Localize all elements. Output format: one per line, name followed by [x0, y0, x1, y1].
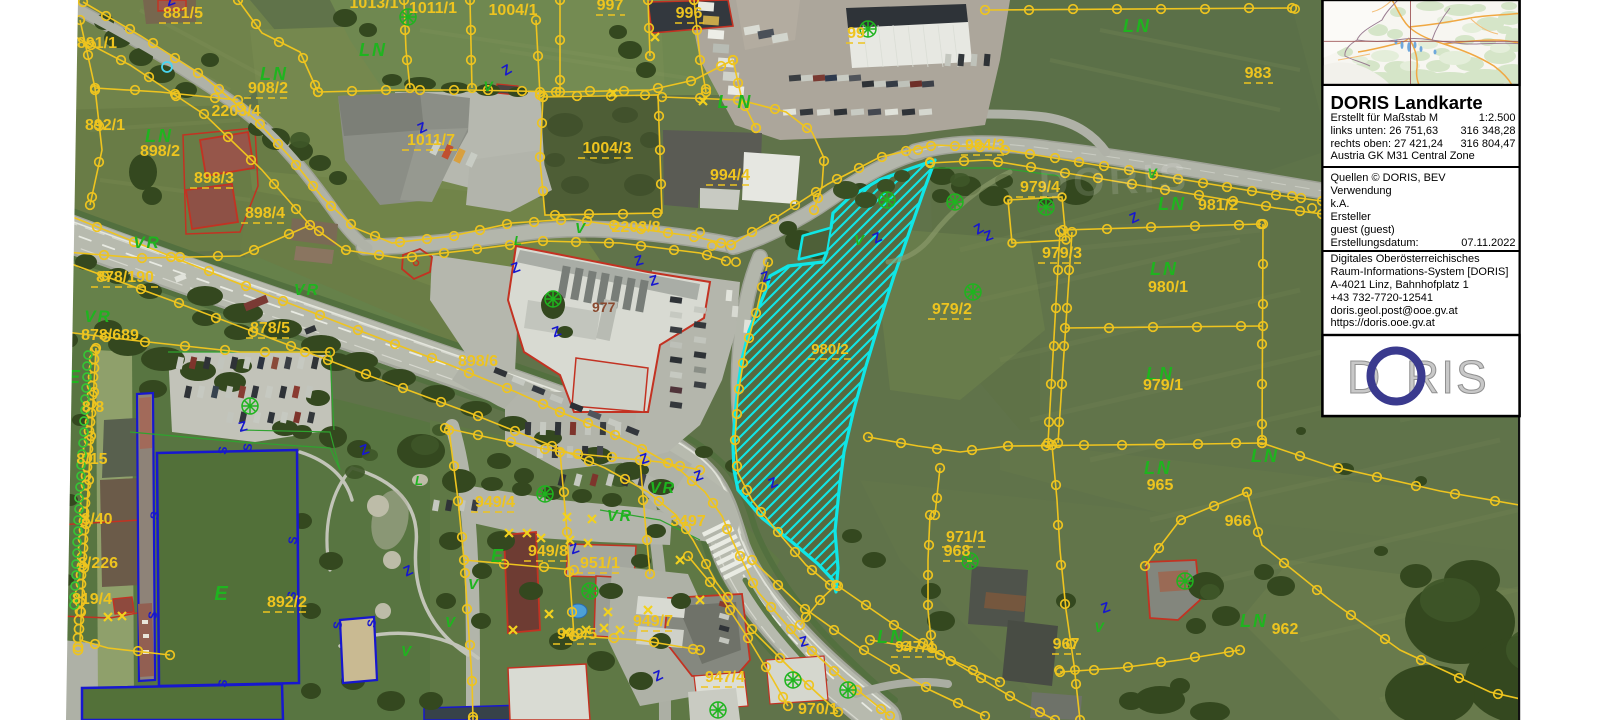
svg-text:Digitales Oberösterreichisches: Digitales Oberösterreichisches [1331, 253, 1481, 265]
svg-text:898/6: 898/6 [458, 353, 498, 370]
svg-text:962: 962 [1272, 621, 1299, 638]
svg-text:878/689: 878/689 [81, 327, 139, 344]
svg-text:947/4: 947/4 [705, 669, 745, 686]
svg-text:1013/1: 1013/1 [350, 0, 399, 12]
svg-text:V: V [575, 220, 587, 237]
svg-text:1:2.500: 1:2.500 [1479, 112, 1516, 124]
svg-text:k.A.: k.A. [1331, 198, 1350, 210]
svg-text:V: V [1094, 619, 1105, 635]
svg-text:Ersteller: Ersteller [1331, 211, 1372, 223]
svg-text:DORIS Landkarte: DORIS Landkarte [1331, 92, 1483, 113]
svg-text:1011/7: 1011/7 [407, 132, 455, 149]
svg-text:+43 732-7720-12541: +43 732-7720-12541 [1331, 292, 1433, 304]
svg-text:967: 967 [1053, 636, 1080, 653]
svg-text:V: V [401, 643, 413, 660]
svg-text:99: 99 [847, 25, 865, 42]
svg-text:966: 966 [1225, 513, 1252, 530]
svg-text:965: 965 [1147, 477, 1174, 494]
svg-text:Quellen © DORIS, BEV: Quellen © DORIS, BEV [1331, 172, 1447, 184]
svg-text:V: V [468, 576, 480, 593]
svg-text:LN: LN [359, 40, 387, 60]
svg-text:316 348,28: 316 348,28 [1460, 125, 1515, 137]
svg-text:951/1: 951/1 [580, 555, 620, 572]
svg-text:LN: LN [1150, 259, 1178, 279]
svg-text:1011/1: 1011/1 [409, 0, 457, 17]
svg-text:Erstellungsdatum:: Erstellungsdatum: [1331, 237, 1419, 249]
svg-text:881/5: 881/5 [163, 5, 203, 22]
svg-text:819/4: 819/4 [72, 591, 112, 608]
svg-text:949/5: 949/5 [557, 626, 597, 643]
svg-text:LN: LN [1251, 446, 1279, 466]
svg-text:878/5: 878/5 [250, 320, 290, 337]
svg-text:Erstellt für Maßstab M: Erstellt für Maßstab M [1331, 112, 1439, 124]
svg-text:947/4: 947/4 [895, 639, 935, 656]
svg-text:892/1: 892/1 [85, 117, 125, 134]
svg-text:996: 996 [676, 5, 703, 22]
svg-text:LN: LN [1240, 611, 1268, 631]
svg-text:908/2: 908/2 [248, 80, 288, 97]
svg-text:980/2: 980/2 [811, 341, 849, 358]
svg-text:949/8: 949/8 [528, 543, 568, 560]
svg-text:Verwendung: Verwendung [1331, 185, 1392, 197]
svg-text:949/4: 949/4 [475, 494, 515, 511]
svg-text:8/8: 8/8 [82, 399, 104, 416]
svg-text:949/7: 949/7 [633, 613, 673, 630]
svg-text:2203/4: 2203/4 [212, 103, 261, 120]
svg-text:891/1: 891/1 [77, 35, 117, 52]
svg-text:VR: VR [84, 307, 112, 326]
svg-text:1004/3: 1004/3 [583, 140, 632, 157]
svg-text:994/4: 994/4 [710, 167, 750, 184]
svg-text:971/1: 971/1 [946, 529, 986, 546]
svg-text:3497: 3497 [670, 513, 706, 530]
svg-text:VR: VR [607, 508, 633, 525]
svg-text:2203/8: 2203/8 [612, 219, 661, 236]
svg-text:L: L [514, 233, 524, 248]
svg-text:doris.geol.post@ooe.gv.at: doris.geol.post@ooe.gv.at [1331, 305, 1458, 317]
svg-text:VR: VR [650, 480, 676, 497]
svg-text:07.11.2022: 07.11.2022 [1461, 237, 1515, 249]
svg-text:A-4021 Linz, Bahnhofplatz 1: A-4021 Linz, Bahnhofplatz 1 [1331, 279, 1469, 291]
svg-text:LN: LN [1144, 458, 1172, 478]
svg-text:981/2: 981/2 [1198, 197, 1238, 214]
svg-text:892/2: 892/2 [267, 594, 307, 611]
svg-text:E: E [214, 583, 229, 605]
svg-text:1004/1: 1004/1 [489, 2, 538, 19]
svg-text:8/40: 8/40 [81, 511, 112, 528]
svg-text:V: V [483, 78, 494, 94]
svg-text:878/190: 878/190 [96, 269, 154, 286]
svg-text:https://doris.ooe.gv.at: https://doris.ooe.gv.at [1331, 317, 1435, 329]
svg-text:979/3: 979/3 [1042, 245, 1082, 262]
svg-text:898/4: 898/4 [245, 205, 285, 222]
svg-text:E: E [491, 546, 505, 566]
svg-text:980/1: 980/1 [1148, 279, 1188, 296]
svg-text:8/15: 8/15 [76, 451, 107, 468]
svg-text:L N: L N [718, 92, 753, 112]
svg-text:DORIS: DORIS [1038, 155, 1192, 207]
svg-text:979/2: 979/2 [932, 301, 972, 318]
svg-text:979/1: 979/1 [1143, 377, 1183, 394]
svg-text:Raum-Informations-System [DORI: Raum-Informations-System [DORIS] [1331, 266, 1509, 278]
svg-text:VR: VR [133, 233, 161, 252]
svg-text:V: V [854, 232, 866, 249]
svg-text:links unten: 26 751,63: links unten: 26 751,63 [1331, 125, 1439, 137]
svg-text:LN: LN [1123, 16, 1151, 36]
svg-text:898/3: 898/3 [194, 170, 234, 187]
svg-text:8/226: 8/226 [78, 555, 118, 572]
svg-text:guest (guest): guest (guest) [1331, 224, 1395, 236]
svg-text:898/2: 898/2 [140, 143, 180, 160]
svg-text:970/1: 970/1 [798, 701, 838, 718]
svg-text:983: 983 [1245, 65, 1272, 82]
svg-text:rechts oben: 27 421,24: rechts oben: 27 421,24 [1331, 138, 1444, 150]
svg-text:994/3: 994/3 [965, 137, 1005, 154]
svg-text:V: V [445, 614, 457, 631]
svg-text:997: 997 [597, 0, 624, 14]
svg-text:Austria GK M31 Central Zone: Austria GK M31 Central Zone [1331, 150, 1475, 162]
svg-text:VR: VR [294, 282, 320, 299]
svg-text:316 804,47: 316 804,47 [1460, 138, 1515, 150]
svg-text:977: 977 [592, 299, 616, 315]
svg-text:L: L [415, 473, 425, 488]
